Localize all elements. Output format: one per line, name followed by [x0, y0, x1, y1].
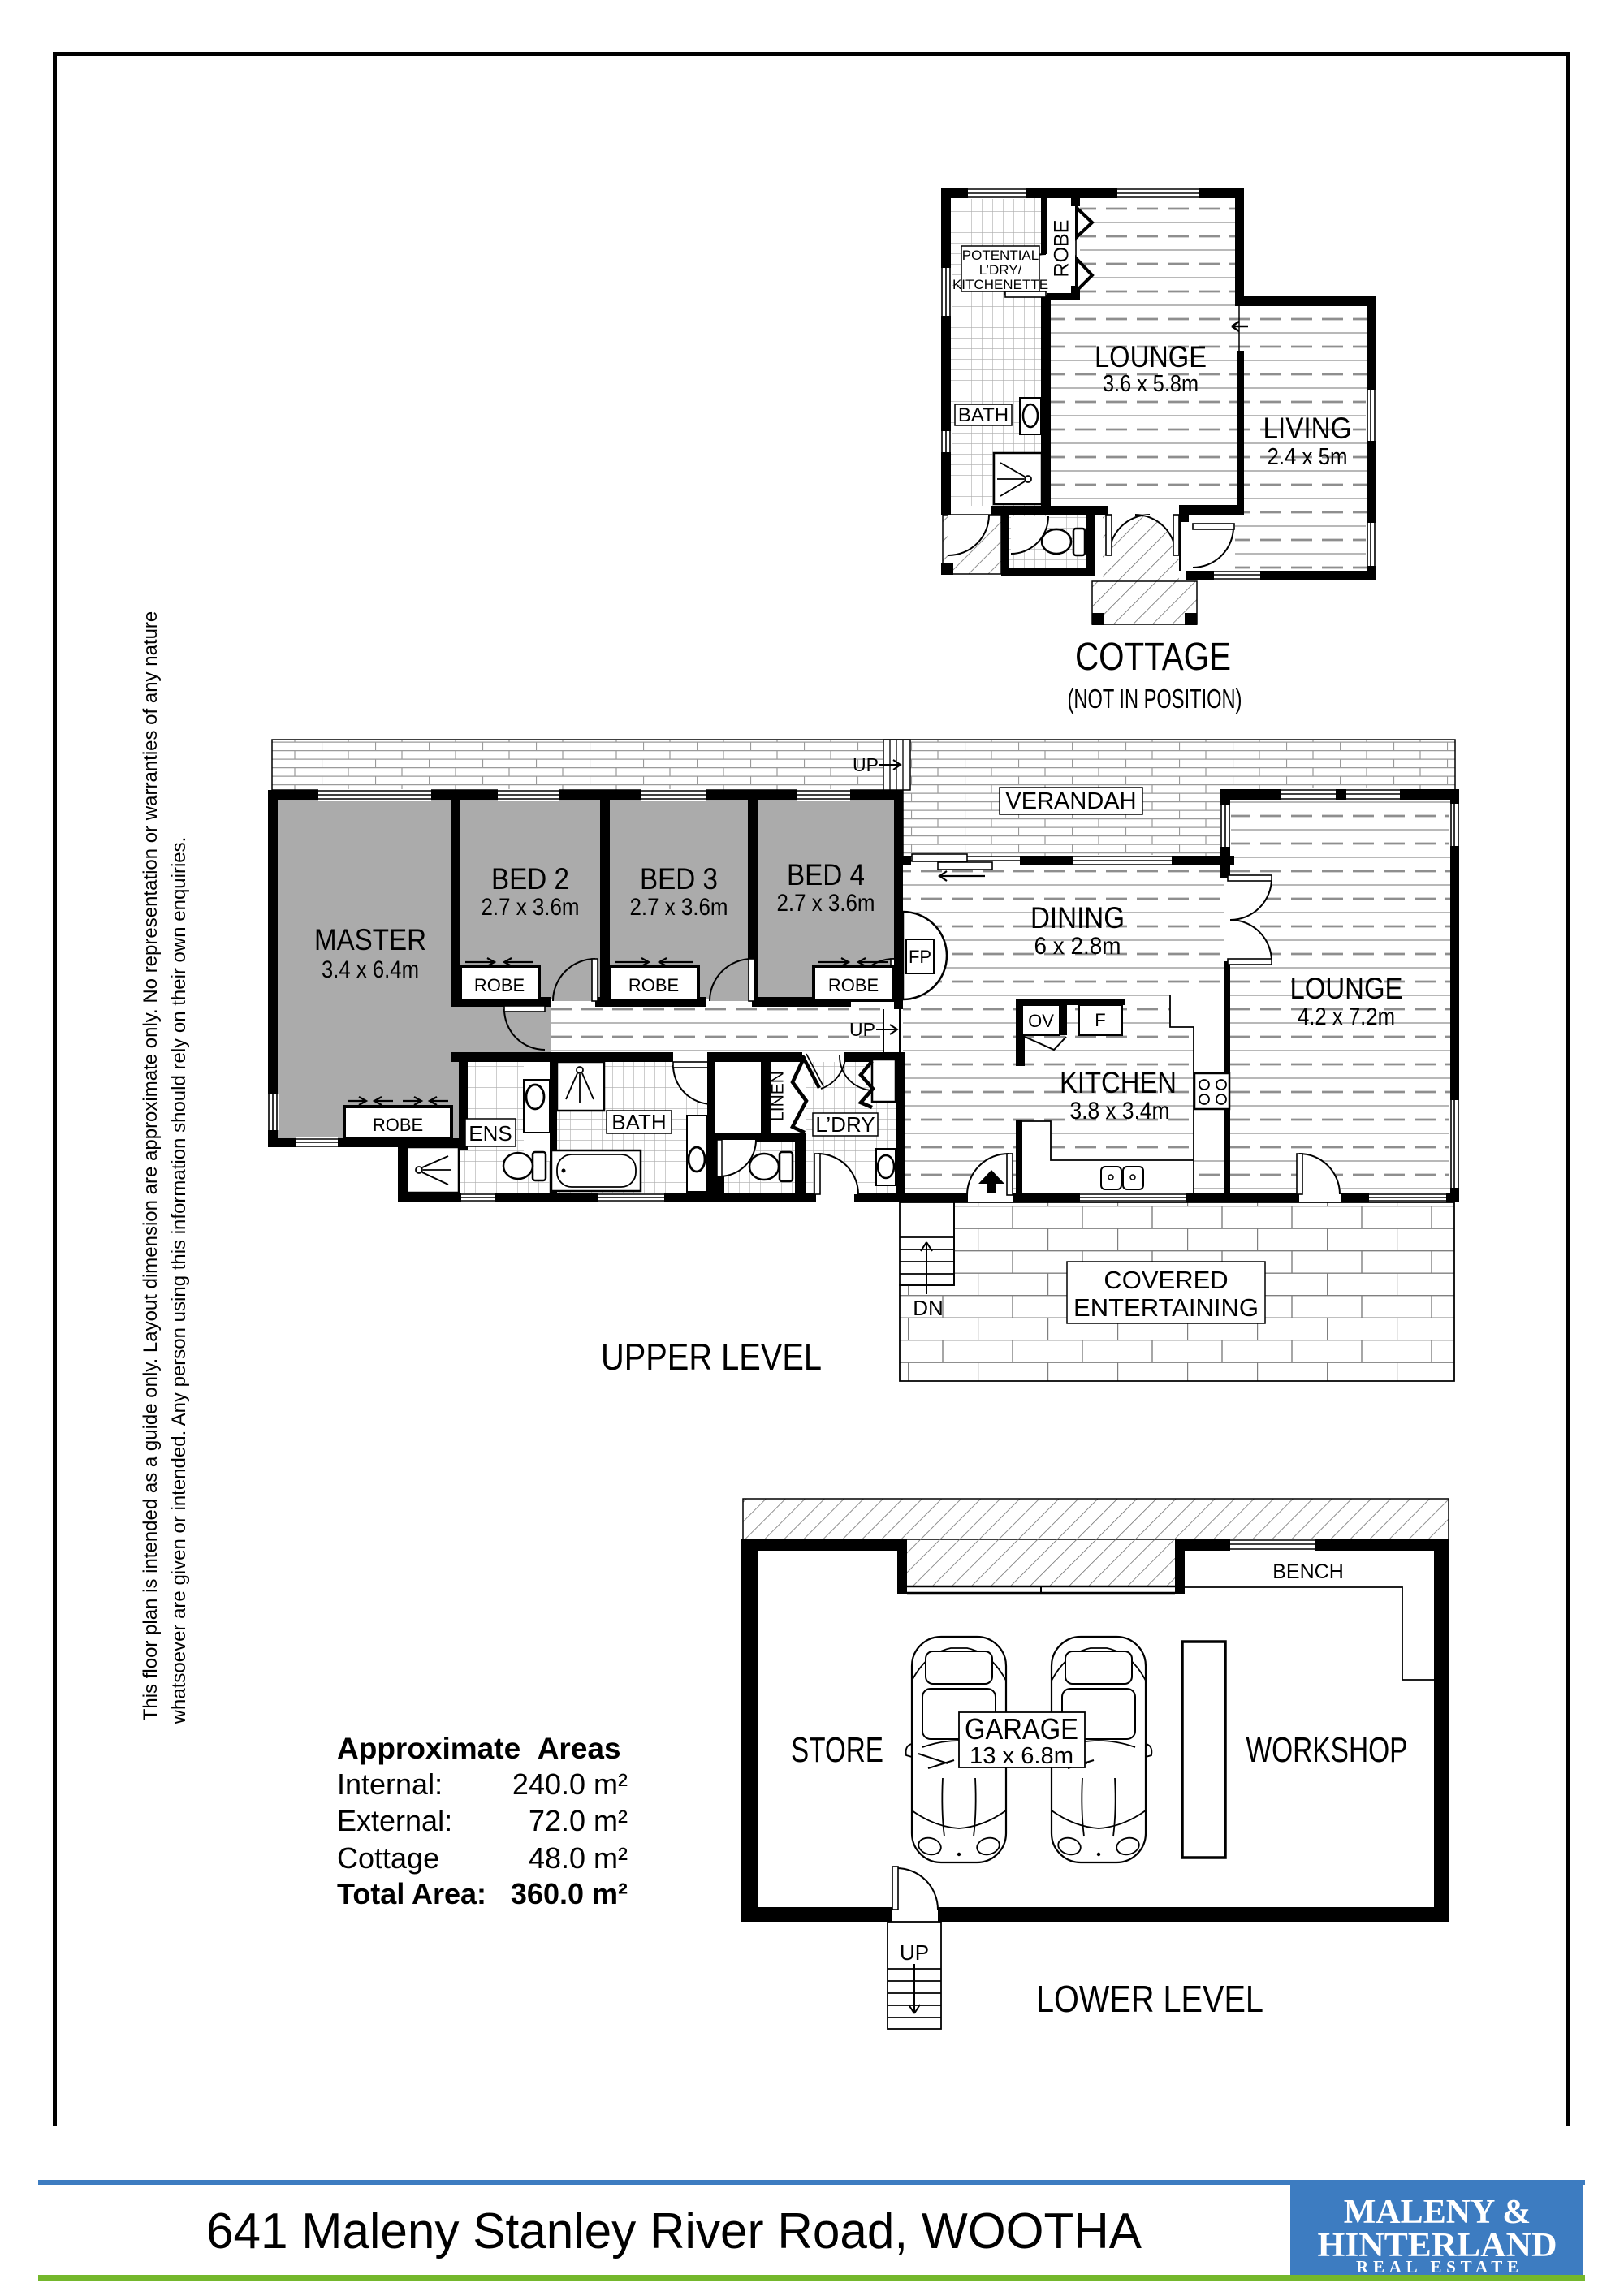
svg-text:LINEN: LINEN	[769, 1071, 788, 1121]
svg-text:BATH: BATH	[611, 1110, 666, 1134]
svg-text:ENS: ENS	[469, 1121, 512, 1146]
svg-text:MASTER: MASTER	[314, 923, 426, 956]
svg-text:UPPER LEVEL: UPPER LEVEL	[601, 1336, 822, 1378]
svg-text:Cottage: Cottage	[337, 1841, 439, 1875]
svg-text:BED 2: BED 2	[491, 862, 569, 896]
svg-text:ROBE: ROBE	[373, 1115, 423, 1135]
svg-text:ENTERTAINING: ENTERTAINING	[1073, 1293, 1259, 1322]
svg-text:UP: UP	[849, 1019, 875, 1040]
svg-text:ROBE: ROBE	[828, 975, 879, 995]
svg-text:2.4 x 5m: 2.4 x 5m	[1268, 444, 1348, 470]
svg-text:L’DRY/: L’DRY/	[979, 262, 1022, 278]
svg-text:Total Area:: Total Area:	[337, 1877, 486, 1910]
svg-text:UP: UP	[900, 1940, 929, 1965]
svg-text:whatsoever are given or intend: whatsoever are given or intended. Any pe…	[168, 837, 190, 1725]
svg-text:COVERED: COVERED	[1104, 1266, 1228, 1294]
svg-text:3.8 x 3.4m: 3.8 x 3.4m	[1070, 1098, 1170, 1124]
svg-text:4.2 x 7.2m: 4.2 x 7.2m	[1298, 1003, 1395, 1030]
svg-text:BED 3: BED 3	[640, 862, 718, 896]
svg-text:360.0 m²: 360.0 m²	[511, 1877, 628, 1910]
svg-text:ROBE: ROBE	[474, 975, 525, 995]
svg-text:F: F	[1095, 1010, 1105, 1030]
svg-text:ROBE: ROBE	[628, 975, 679, 995]
svg-text:2.7 x 3.6m: 2.7 x 3.6m	[777, 890, 875, 917]
svg-text:240.0 m²: 240.0 m²	[512, 1767, 628, 1801]
svg-text:STORE: STORE	[791, 1730, 883, 1770]
svg-text:External:: External:	[337, 1804, 452, 1837]
svg-text:6 x 2.8m: 6 x 2.8m	[1034, 933, 1121, 960]
svg-text:BED 4: BED 4	[787, 858, 865, 891]
svg-text:Internal:: Internal:	[337, 1767, 443, 1801]
svg-text:(NOT IN POSITION): (NOT IN POSITION)	[1068, 684, 1242, 714]
svg-text:2.7 x 3.6m: 2.7 x 3.6m	[630, 894, 728, 921]
svg-text:3.4 x 6.4m: 3.4 x 6.4m	[322, 956, 419, 983]
svg-text:FP: FP	[909, 947, 931, 967]
svg-text:GARAGE: GARAGE	[965, 1712, 1078, 1746]
svg-text:LOWER LEVEL: LOWER LEVEL	[1036, 1978, 1263, 2020]
svg-text:LOUNGE: LOUNGE	[1095, 340, 1207, 373]
svg-text:Approximate Areas: Approximate Areas	[337, 1732, 621, 1765]
svg-text:This floor plan is intended as: This floor plan is intended as a guide o…	[140, 611, 162, 1721]
svg-text:REAL ESTATE: REAL ESTATE	[1356, 2257, 1518, 2277]
svg-text:641 Maleny Stanley River Road,: 641 Maleny Stanley River Road, WOOTHA	[206, 2203, 1142, 2259]
svg-text:OV: OV	[1028, 1011, 1054, 1031]
svg-text:L’DRY: L’DRY	[815, 1112, 875, 1137]
svg-text:MALENY &: MALENY &	[1344, 2194, 1531, 2231]
svg-text:3.6 x 5.8m: 3.6 x 5.8m	[1103, 371, 1199, 397]
svg-text:LOUNGE: LOUNGE	[1290, 972, 1403, 1005]
svg-text:KITCHENETTE: KITCHENETTE	[952, 277, 1048, 292]
svg-text:ROBE: ROBE	[1051, 220, 1073, 278]
svg-text:DINING: DINING	[1030, 901, 1125, 934]
svg-text:UP: UP	[853, 754, 879, 775]
svg-text:BATH: BATH	[958, 404, 1009, 426]
svg-text:COTTAGE: COTTAGE	[1075, 636, 1231, 679]
svg-text:72.0 m²: 72.0 m²	[529, 1804, 628, 1837]
svg-text:BENCH: BENCH	[1272, 1560, 1344, 1583]
svg-text:KITCHEN: KITCHEN	[1060, 1066, 1177, 1099]
svg-text:2.7 x 3.6m: 2.7 x 3.6m	[482, 894, 580, 921]
svg-text:48.0 m²: 48.0 m²	[529, 1841, 628, 1875]
svg-text:WORKSHOP: WORKSHOP	[1246, 1730, 1408, 1770]
svg-text:VERANDAH: VERANDAH	[1005, 788, 1136, 814]
svg-text:LIVING: LIVING	[1263, 412, 1352, 445]
svg-text:POTENTIAL: POTENTIAL	[962, 248, 1039, 263]
svg-text:13 x 6.8m: 13 x 6.8m	[970, 1743, 1073, 1769]
